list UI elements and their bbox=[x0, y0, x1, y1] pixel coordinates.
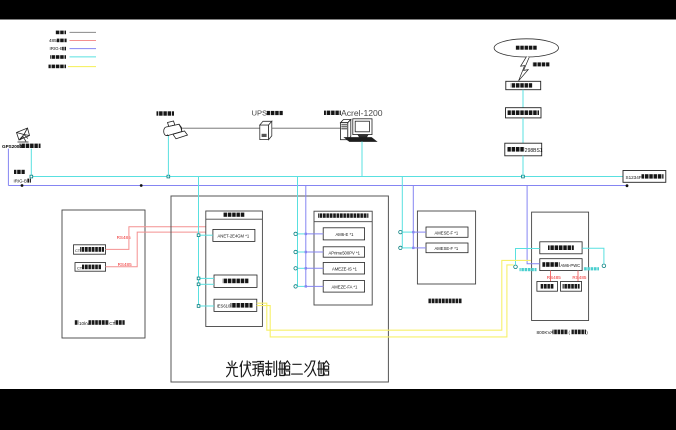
svg-text:AMEZE-FA *1: AMEZE-FA *1 bbox=[332, 285, 359, 290]
svg-text:RS485: RS485 bbox=[572, 275, 586, 280]
svg-text:IRIG-B: IRIG-B bbox=[14, 178, 27, 183]
svg-text:AMESE-F *1: AMESE-F *1 bbox=[435, 246, 459, 251]
svg-text:AMEZE-IS *1: AMEZE-IS *1 bbox=[332, 267, 358, 272]
svg-text:AMESE-F *1: AMESE-F *1 bbox=[435, 231, 459, 236]
svg-text:RS485: RS485 bbox=[118, 262, 132, 267]
svg-text:IES610: IES610 bbox=[217, 304, 231, 309]
svg-text:298BS1: 298BS1 bbox=[525, 148, 543, 154]
svg-text:800KVA: 800KVA bbox=[537, 330, 555, 335]
svg-text:IRIG-B: IRIG-B bbox=[50, 46, 63, 51]
svg-text:UPS: UPS bbox=[252, 109, 268, 118]
svg-text:RS485: RS485 bbox=[547, 275, 561, 280]
svg-text:AM6-PWC: AM6-PWC bbox=[560, 263, 580, 268]
svg-text:CT: CT bbox=[77, 265, 83, 270]
svg-text:CT: CT bbox=[75, 248, 81, 253]
svg-text:Acrel-1200: Acrel-1200 bbox=[341, 108, 383, 118]
svg-text:AM6-E *1: AM6-E *1 bbox=[336, 232, 355, 237]
svg-text:S1234F: S1234F bbox=[626, 175, 642, 180]
svg-text:ANET-2E4GM *1: ANET-2E4GM *1 bbox=[218, 233, 250, 238]
svg-text:GPS2000: GPS2000 bbox=[2, 144, 22, 149]
svg-text:485: 485 bbox=[49, 38, 57, 43]
svg-text:APrime500PV *1: APrime500PV *1 bbox=[329, 250, 361, 255]
